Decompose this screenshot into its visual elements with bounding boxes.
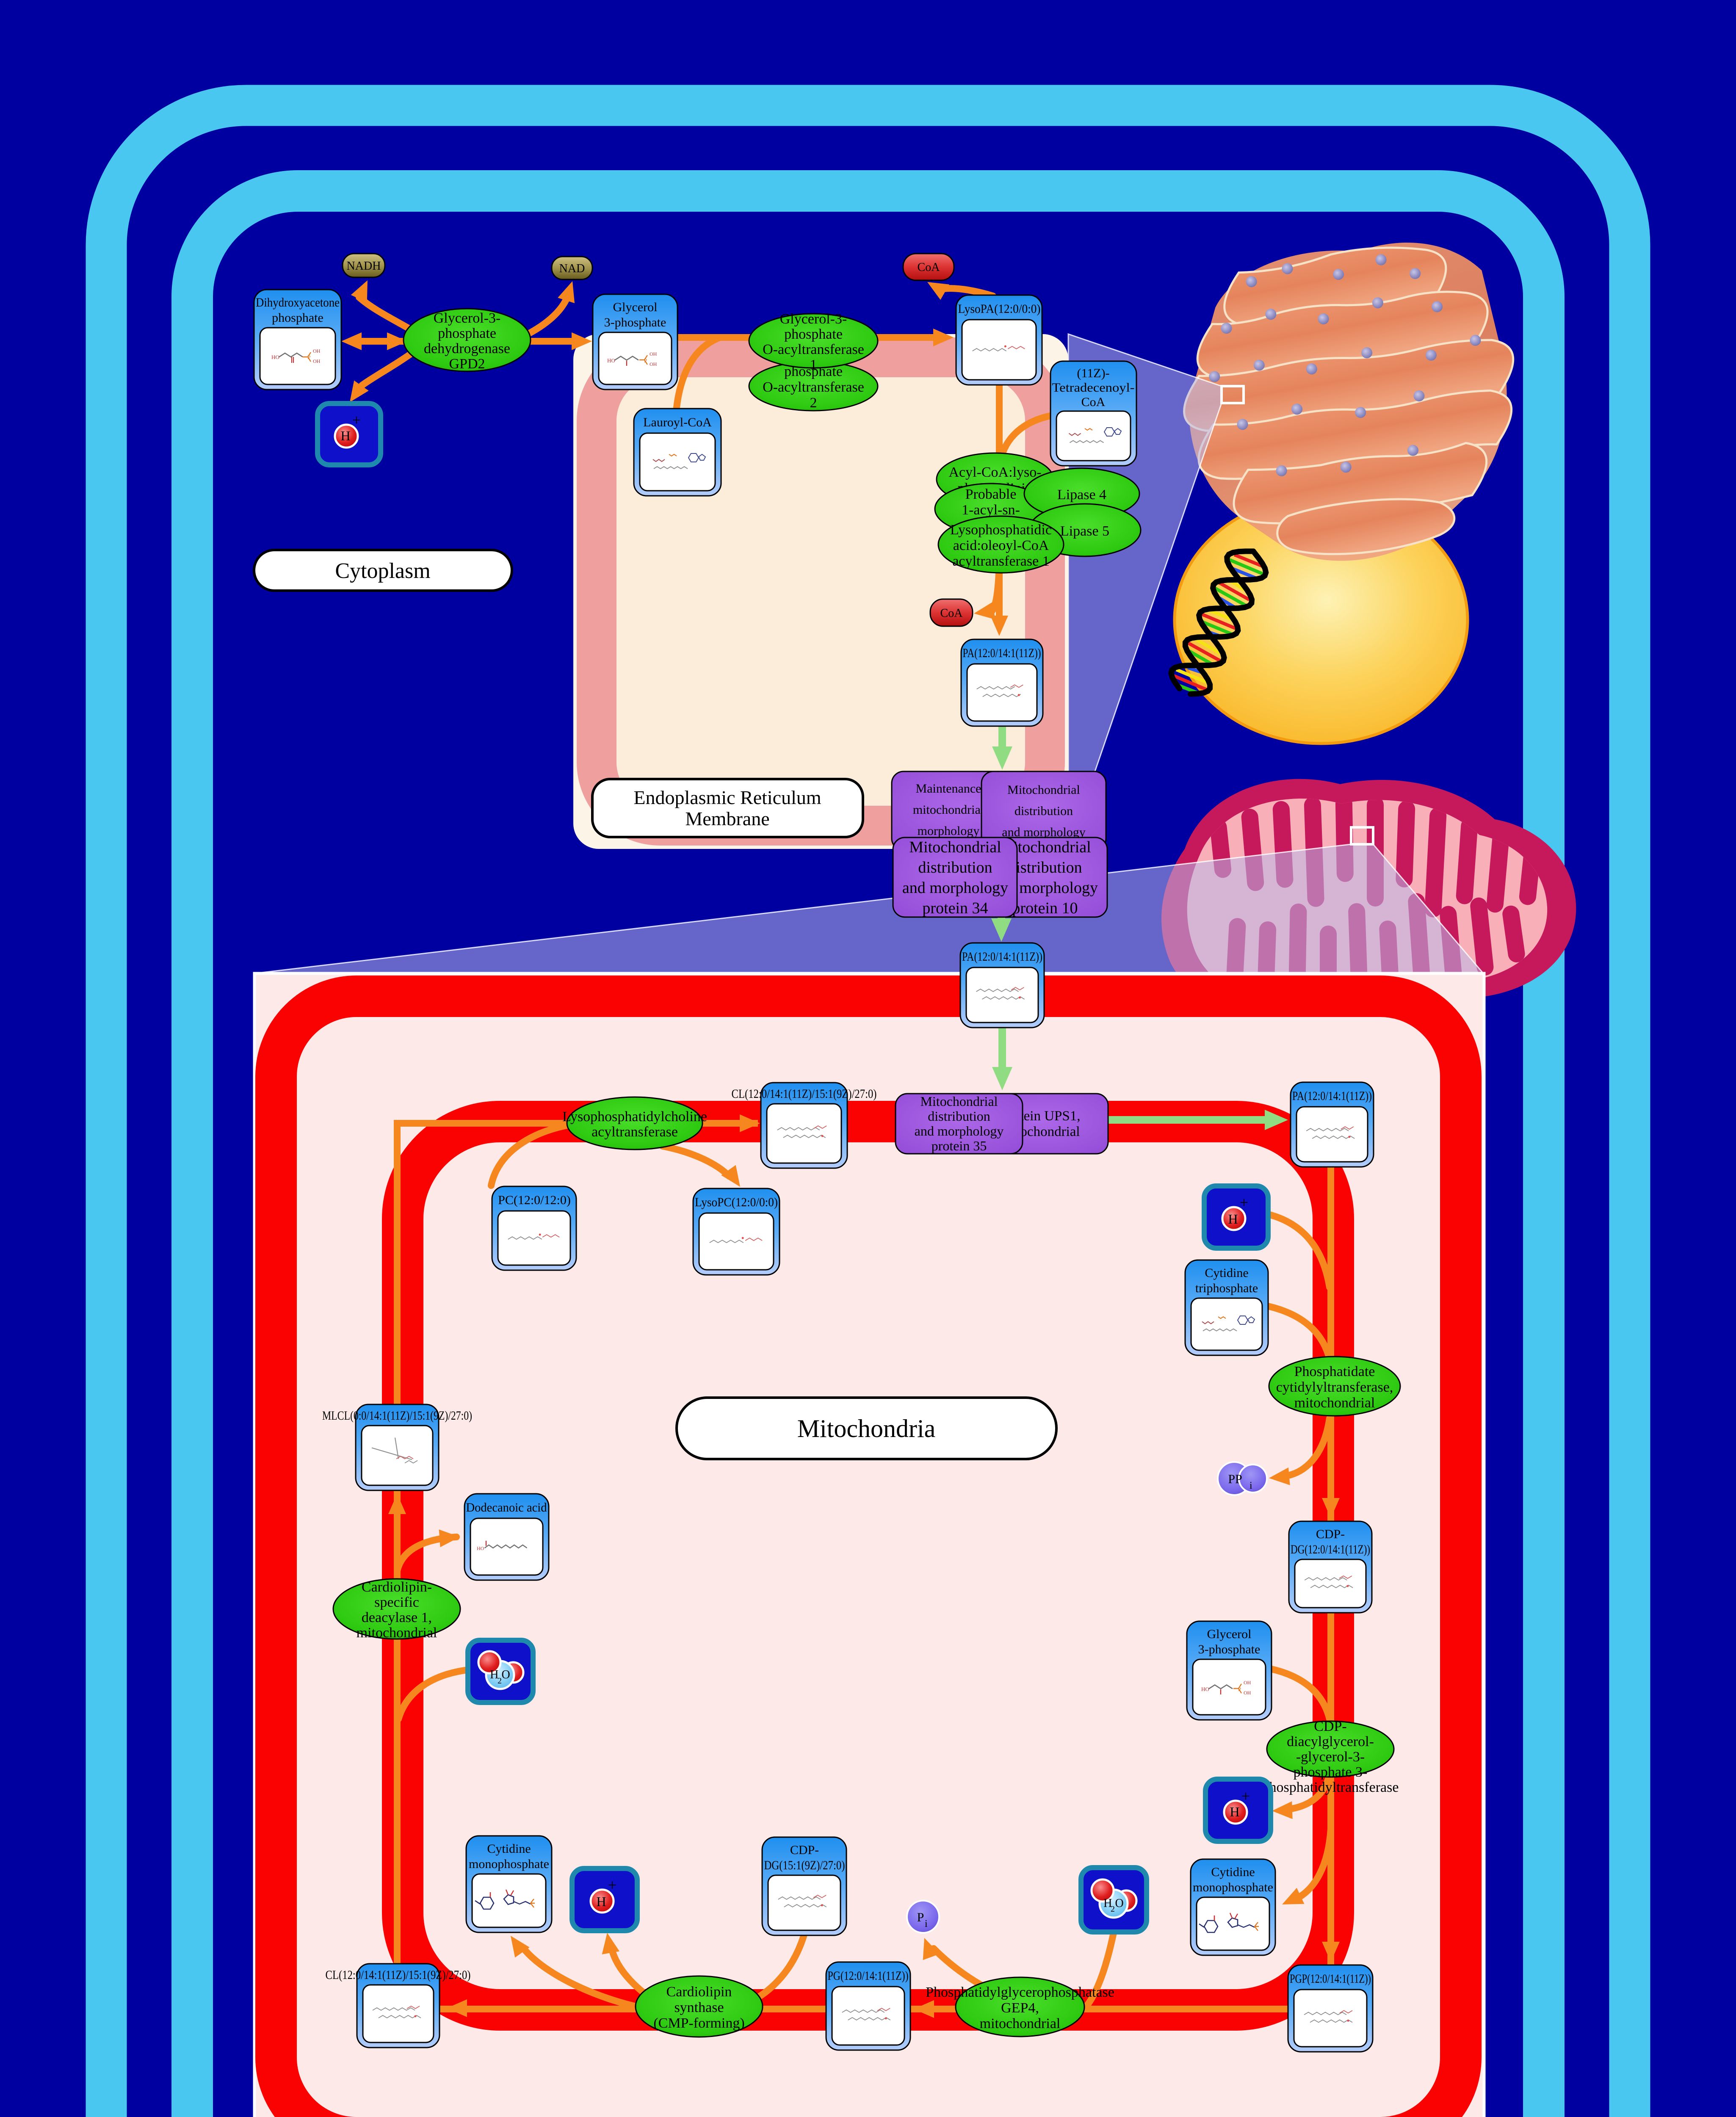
svg-text:PC(12:0/12:0): PC(12:0/12:0)	[498, 1193, 571, 1207]
svg-text:distribution: distribution	[928, 1108, 990, 1124]
svg-text:Dihydroxyacetone: Dihydroxyacetone	[256, 296, 340, 310]
svg-text:PGP(12:0/14:1(11Z)): PGP(12:0/14:1(11Z))	[1290, 1972, 1371, 1986]
svg-text:O-acyltransferase: O-acyltransferase	[763, 342, 864, 357]
svg-text:Cardiolipin: Cardiolipin	[666, 1984, 732, 2000]
svg-text:phosphate: phosphate	[438, 326, 496, 341]
svg-text:H: H	[1228, 1211, 1238, 1227]
svg-text:1-acyl-sn-: 1-acyl-sn-	[962, 502, 1020, 518]
svg-text:(CMP-forming): (CMP-forming)	[653, 2015, 744, 2031]
svg-text:OH: OH	[650, 361, 657, 367]
svg-text:O-acyltransferase: O-acyltransferase	[763, 379, 864, 395]
svg-text:and morphology: and morphology	[915, 1123, 1004, 1139]
svg-text:distribution: distribution	[1015, 804, 1073, 818]
svg-text:monophosphate: monophosphate	[469, 1857, 549, 1871]
svg-text:Lipase 5: Lipase 5	[1060, 523, 1109, 539]
svg-text:acyltransferase: acyltransferase	[592, 1124, 678, 1140]
svg-text:PP: PP	[1228, 1472, 1242, 1486]
svg-text:monophosphate: monophosphate	[1193, 1880, 1273, 1894]
svg-text:Cytidine: Cytidine	[1211, 1865, 1255, 1879]
svg-text:protein 34: protein 34	[922, 899, 988, 917]
svg-text:HO: HO	[607, 357, 615, 364]
svg-text:Acyl-CoA:lyso-: Acyl-CoA:lyso-	[948, 464, 1041, 480]
svg-text:CDP-: CDP-	[790, 1843, 819, 1857]
svg-text:LysoPC(12:0/0:0): LysoPC(12:0/0:0)	[695, 1195, 778, 1209]
svg-text:distribution: distribution	[918, 859, 992, 876]
svg-text:HO: HO	[271, 354, 279, 360]
svg-text:CDP-: CDP-	[1314, 1719, 1346, 1734]
svg-text:3-phosphate: 3-phosphate	[604, 315, 666, 329]
svg-text:mitochondrial: mitochondrial	[1294, 1395, 1375, 1411]
svg-text:+: +	[608, 1877, 616, 1893]
svg-text:Tetradecenoyl-: Tetradecenoyl-	[1052, 381, 1135, 395]
svg-text:specific: specific	[374, 1595, 419, 1610]
svg-text:Phosphatidate: Phosphatidate	[1294, 1364, 1375, 1379]
svg-text:mitochondrial: mitochondrial	[913, 803, 984, 817]
svg-text:Lysophosphatidylcholine: Lysophosphatidylcholine	[562, 1109, 707, 1125]
svg-text:Glycerol: Glycerol	[613, 300, 658, 314]
svg-text:i: i	[925, 1918, 928, 1929]
svg-text:CDP-: CDP-	[1316, 1527, 1345, 1541]
svg-text:and morphology: and morphology	[902, 879, 1008, 897]
svg-text:distribution: distribution	[1008, 859, 1082, 876]
svg-text:triphosphate: triphosphate	[1195, 1281, 1258, 1295]
svg-text:phosphate: phosphate	[272, 311, 323, 325]
svg-text:acid:oleoyl-CoA: acid:oleoyl-CoA	[953, 538, 1049, 553]
svg-text:mitochondrial: mitochondrial	[980, 2016, 1061, 2031]
svg-text:protein 35: protein 35	[932, 1138, 987, 1153]
svg-text:deacylase 1,: deacylase 1,	[362, 1610, 432, 1625]
svg-text:OH: OH	[313, 358, 321, 364]
svg-text:PG(12:0/14:1(11Z)): PG(12:0/14:1(11Z))	[828, 1969, 909, 1983]
svg-text:Cytidine: Cytidine	[1205, 1266, 1248, 1280]
svg-text:NAD: NAD	[559, 262, 585, 275]
svg-text:cytidylyltransferase,: cytidylyltransferase,	[1276, 1379, 1393, 1395]
svg-text:-glycerol-3-: -glycerol-3-	[1296, 1749, 1365, 1765]
svg-text:+: +	[1241, 1788, 1250, 1805]
svg-text:Lysophosphatidic: Lysophosphatidic	[950, 522, 1052, 538]
svg-text:LysoPA(12:0/0:0): LysoPA(12:0/0:0)	[958, 302, 1041, 316]
svg-text:Glycerol: Glycerol	[1207, 1627, 1252, 1641]
svg-text:i: i	[1249, 1480, 1252, 1491]
svg-text:2: 2	[1111, 1904, 1115, 1914]
svg-text:Dodecanoic acid: Dodecanoic acid	[466, 1501, 547, 1515]
svg-text:phosphate: phosphate	[784, 326, 843, 342]
svg-text:3-phosphate: 3-phosphate	[1198, 1642, 1261, 1656]
svg-text:GPD2: GPD2	[449, 356, 485, 372]
svg-text:Endoplasmic Reticulum: Endoplasmic Reticulum	[633, 787, 821, 808]
svg-text:HO: HO	[1201, 1686, 1209, 1692]
svg-text:mitochondrial: mitochondrial	[357, 1625, 437, 1641]
svg-text:Glycerol-3-: Glycerol-3-	[434, 310, 501, 326]
svg-text:(11Z)-: (11Z)-	[1077, 366, 1109, 380]
svg-text:Maintenance: Maintenance	[916, 782, 981, 796]
svg-text:dehydrogenase: dehydrogenase	[424, 341, 510, 357]
svg-text:2: 2	[498, 1676, 502, 1686]
svg-text:morphology: morphology	[918, 824, 980, 838]
svg-text:phosphate 3-: phosphate 3-	[1294, 1764, 1368, 1780]
svg-text:OH: OH	[313, 348, 321, 354]
svg-text:1: 1	[810, 357, 817, 373]
svg-text:protein 10: protein 10	[1012, 899, 1078, 917]
svg-text:NADH: NADH	[347, 260, 381, 273]
svg-text:PA(12:0/14:1(11Z)): PA(12:0/14:1(11Z))	[963, 646, 1041, 660]
svg-text:PA(12:0/14:1(11Z)): PA(12:0/14:1(11Z))	[1292, 1089, 1372, 1103]
svg-text:Membrane: Membrane	[685, 808, 769, 829]
svg-text:OH: OH	[650, 351, 657, 357]
svg-text:DG(12:0/14:1(11Z)): DG(12:0/14:1(11Z))	[1291, 1542, 1370, 1556]
svg-text:Probable: Probable	[965, 486, 1017, 502]
svg-text:+: +	[352, 412, 361, 428]
svg-text:H: H	[340, 428, 350, 443]
svg-text:CL(12:0/14:1(11Z)/15:1(9Z)/27:: CL(12:0/14:1(11Z)/15:1(9Z)/27:0)	[326, 1968, 471, 1982]
svg-text:GEP4,: GEP4,	[1001, 2000, 1039, 2016]
svg-text:Cytidine: Cytidine	[487, 1842, 531, 1856]
svg-text:+: +	[1240, 1194, 1248, 1211]
svg-text:H: H	[596, 1894, 606, 1909]
svg-text:DG(15:1(9Z)/27:0): DG(15:1(9Z)/27:0)	[764, 1858, 845, 1872]
svg-text:Lauroyl-CoA: Lauroyl-CoA	[643, 415, 712, 429]
svg-text:Cytoplasm: Cytoplasm	[335, 559, 430, 583]
svg-text:P: P	[1238, 1686, 1241, 1692]
svg-text:Mitochondrial: Mitochondrial	[920, 1094, 998, 1109]
svg-text:HO: HO	[477, 1545, 484, 1551]
svg-text:MLCL(0:0/14:1(11Z)/15:1(9Z)/27: MLCL(0:0/14:1(11Z)/15:1(9Z)/27:0)	[322, 1409, 472, 1423]
svg-text:P: P	[917, 1910, 924, 1924]
svg-text:synthase: synthase	[674, 2000, 724, 2015]
svg-text:P: P	[307, 354, 310, 360]
svg-text:H: H	[1230, 1804, 1239, 1819]
svg-text:Cardiolipin-: Cardiolipin-	[362, 1579, 432, 1595]
svg-text:Phosphatidylglycerophosphatase: Phosphatidylglycerophosphatase	[926, 1984, 1114, 2000]
svg-text:CoA: CoA	[1081, 395, 1106, 409]
svg-text:Lipase 4: Lipase 4	[1057, 487, 1106, 503]
svg-text:2: 2	[810, 395, 817, 411]
svg-text:Glycerol-3-: Glycerol-3-	[780, 311, 847, 327]
svg-text:acyltransferase 1: acyltransferase 1	[952, 553, 1049, 569]
svg-text:CL(12:0/14:1(11Z)/15:1(9Z)/27:: CL(12:0/14:1(11Z)/15:1(9Z)/27:0)	[732, 1087, 877, 1101]
svg-text:diacylglycerol-: diacylglycerol-	[1287, 1734, 1374, 1749]
svg-text:phosphatidyltransferase: phosphatidyltransferase	[1262, 1780, 1399, 1795]
svg-text:Mitochondrial: Mitochondrial	[909, 838, 1001, 856]
svg-text:P: P	[644, 357, 647, 364]
svg-text:Mitochondrial: Mitochondrial	[1007, 783, 1080, 797]
svg-text:CoA: CoA	[940, 607, 963, 620]
svg-text:Mitochondria: Mitochondria	[797, 1415, 936, 1443]
svg-text:OH: OH	[1244, 1690, 1251, 1696]
svg-text:CoA: CoA	[918, 261, 940, 274]
svg-text:PA(12:0/14:1(11Z)): PA(12:0/14:1(11Z))	[962, 950, 1042, 964]
svg-text:OH: OH	[1244, 1680, 1251, 1686]
